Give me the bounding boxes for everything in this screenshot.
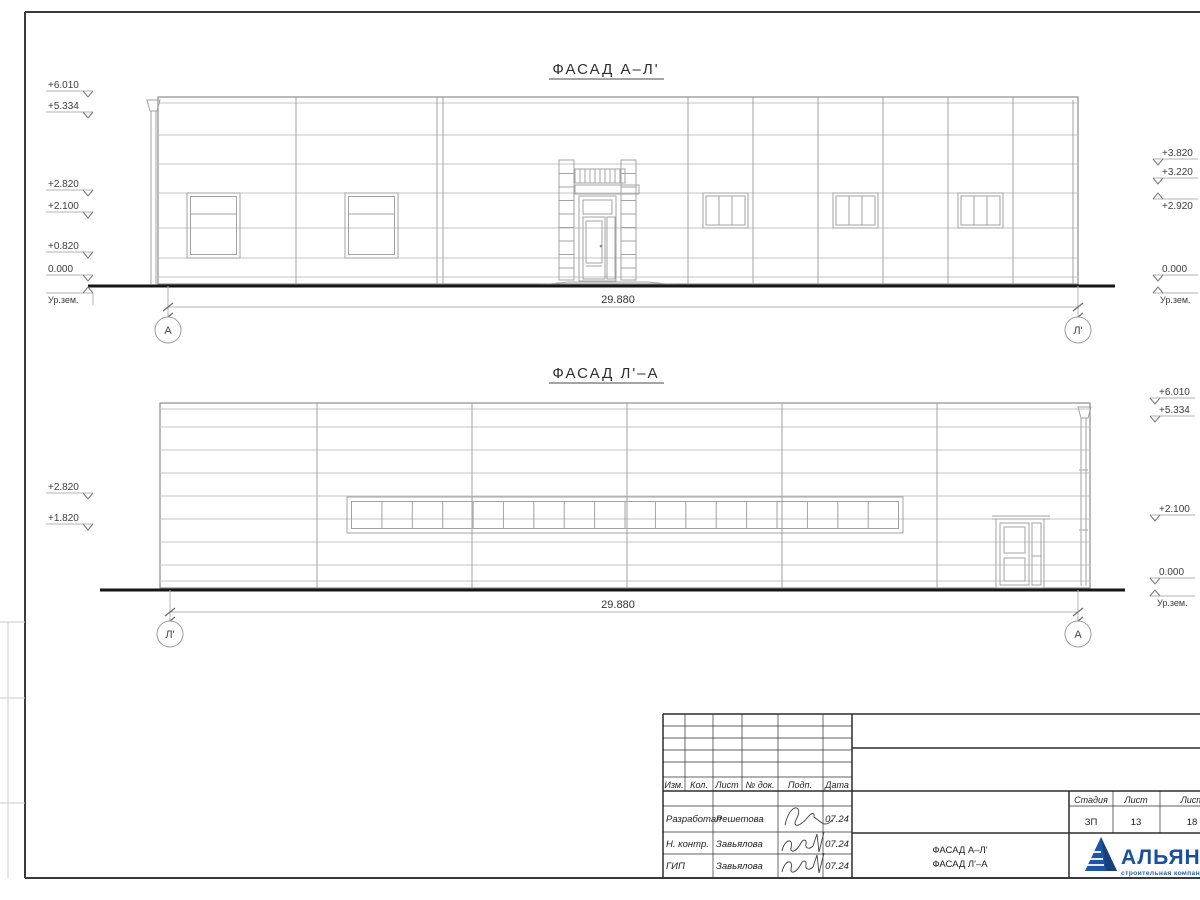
signature <box>782 832 824 852</box>
elevation-value: +2.820 <box>48 482 79 493</box>
axis-label: Л' <box>1073 325 1082 337</box>
tb-date: 07.24 <box>825 861 849 872</box>
entrance-door <box>583 217 615 279</box>
tb-col-kol: Кол. <box>690 780 708 790</box>
elevation-mark: 0.000 <box>1153 264 1198 281</box>
elevation-value: +5.334 <box>1159 405 1190 416</box>
elevation-value: +0.820 <box>48 241 79 252</box>
facade-top: ФАСАД А–Л' <box>46 61 1198 343</box>
tb-col-izm: Изм. <box>664 780 683 790</box>
elevation-mark: +2.920 <box>1153 193 1198 212</box>
elevation-mark: +0.820 <box>46 241 93 258</box>
facade-top-building <box>88 97 1115 286</box>
dimension-value: 29.880 <box>601 599 635 611</box>
tb-sheet-value: 13 <box>1131 817 1142 828</box>
tb-drawing-name-1: ФАСАД А–Л' <box>932 845 987 856</box>
tb-stage-value: ЗП <box>1085 817 1098 828</box>
elevation-value: +2.100 <box>1159 504 1190 515</box>
window <box>187 193 240 258</box>
elevation-mark: +3.220 <box>1153 167 1198 184</box>
tb-date: 07.24 <box>825 814 849 825</box>
elevation-mark: +1.820 <box>46 513 93 530</box>
rear-door <box>992 516 1050 588</box>
entrance <box>540 160 676 285</box>
elevation-mark: +6.010 <box>1150 387 1195 404</box>
elevation-mark: +2.100 <box>1150 504 1195 521</box>
dimension-value: 29.880 <box>601 294 635 306</box>
ground-label: Ур.зем. <box>1160 295 1191 305</box>
elevation-value: +2.820 <box>48 179 79 190</box>
elevation-value: +6.010 <box>48 80 79 91</box>
company-logo: АЛЬЯНС строительная компания <box>1085 837 1200 877</box>
elevation-mark: +5.334 <box>1150 405 1195 422</box>
tb-col-sign: Подп. <box>788 780 812 790</box>
tb-col-doc: № док. <box>746 780 775 790</box>
elevation-value: +6.010 <box>1159 387 1190 398</box>
axis-marker: Л' <box>157 621 183 647</box>
elevation-value: 0.000 <box>1162 264 1187 275</box>
tb-sheet-col: Лист <box>1123 795 1148 805</box>
ground-level-mark: Ур.зем. <box>46 287 93 305</box>
tb-role: Разработал <box>666 814 722 825</box>
elevation-value: +2.100 <box>48 201 79 212</box>
axis-label: Л' <box>165 629 174 641</box>
tb-drawing-name-2: ФАСАД Л'–А <box>932 859 988 870</box>
axis-marker: Л' <box>1065 317 1091 343</box>
elevation-mark: +3.820 <box>1153 148 1198 165</box>
axis-marker: А <box>1065 621 1091 647</box>
axis-label: А <box>1074 629 1082 641</box>
drawing-sheet: ФАСАД А–Л' <box>0 0 1200 900</box>
elevation-mark: +2.100 <box>46 201 93 218</box>
ground-level-mark: Ур.зем. <box>1153 287 1198 305</box>
tb-role: ГИП <box>666 861 685 872</box>
axis-label: А <box>164 325 172 337</box>
elevation-value: +2.920 <box>1162 201 1193 212</box>
elevation-value: +3.220 <box>1162 167 1193 178</box>
tb-person: Решетова <box>716 814 764 825</box>
elevation-value: +3.820 <box>1162 148 1193 159</box>
facade-title: ФАСАД Л'–А <box>552 365 659 382</box>
elevation-value: 0.000 <box>48 264 73 275</box>
signature <box>782 853 824 873</box>
dimension-top: 29.880 А Л' <box>155 286 1091 343</box>
tb-row: ГИП Завьялова 07.24 <box>666 853 849 873</box>
tb-stage-col: Стадия <box>1074 795 1108 805</box>
ribbon-window <box>347 497 903 533</box>
elevation-value: 0.000 <box>1159 567 1184 578</box>
titleblock: Изм. Кол. Лист № док. Подп. Дата Разрабо… <box>663 714 1200 878</box>
tb-person: Завьялова <box>716 839 763 850</box>
window <box>833 193 878 228</box>
ground-label: Ур.зем. <box>1157 598 1188 608</box>
drawing-canvas: ФАСАД А–Л' <box>0 0 1200 900</box>
ground-level-mark: Ур.зем. <box>1150 590 1195 608</box>
facade-bottom: ФАСАД Л'–А <box>46 365 1195 647</box>
logo-text: АЛЬЯНС <box>1121 846 1200 869</box>
elevation-mark: +6.010 <box>46 80 93 97</box>
tb-row: Н. контр. Завьялова 07.24 <box>666 832 849 852</box>
window <box>703 193 748 228</box>
elevation-mark: 0.000 <box>1150 567 1195 584</box>
facade-title: ФАСАД А–Л' <box>552 61 659 78</box>
tb-row: Разработал Решетова 07.24 <box>666 808 849 826</box>
axis-marker: А <box>155 317 181 343</box>
elevation-mark: 0.000 <box>46 264 93 281</box>
tb-sheets-value: 18 <box>1187 817 1198 828</box>
elevation-mark: +5.334 <box>46 101 93 118</box>
elevation-mark: +2.820 <box>46 482 93 499</box>
window <box>958 193 1003 228</box>
elevation-value: +5.334 <box>48 101 79 112</box>
window <box>345 193 398 258</box>
dimension-bottom: 29.880 Л' А <box>157 590 1091 647</box>
elevation-mark: +2.820 <box>46 179 93 196</box>
tb-sheets-col: Листов <box>1180 795 1200 805</box>
tb-date: 07.24 <box>825 839 849 850</box>
tb-role: Н. контр. <box>666 839 709 850</box>
tb-col-date: Дата <box>824 780 849 790</box>
elevation-value: +1.820 <box>48 513 79 524</box>
ground-label: Ур.зем. <box>48 295 79 305</box>
facade-bottom-building <box>100 403 1125 590</box>
tb-col-list: Лист <box>714 780 739 790</box>
logo-subtitle: строительная компания <box>1121 870 1200 877</box>
tb-person: Завьялова <box>716 861 763 872</box>
